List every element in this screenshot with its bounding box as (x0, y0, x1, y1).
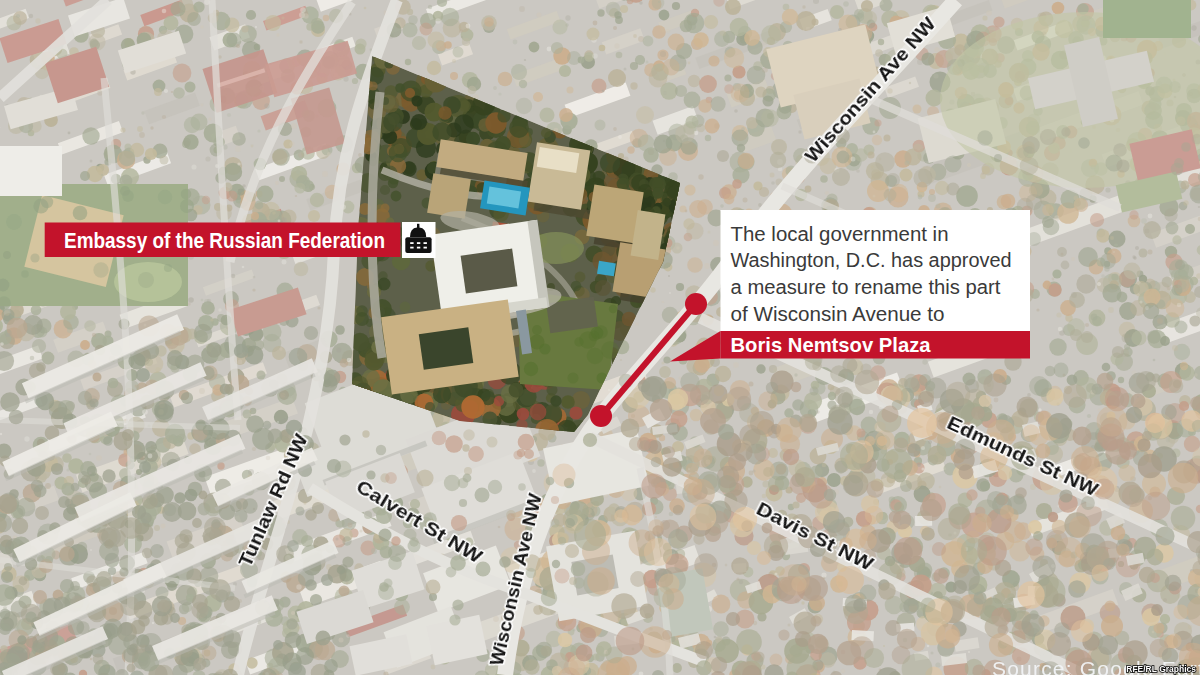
svg-text:a measure to rename this part: a measure to rename this part (731, 276, 1002, 298)
svg-text:Boris Nemtsov Plaza: Boris Nemtsov Plaza (731, 333, 931, 356)
svg-text:RFE/RL Graphics: RFE/RL Graphics (1126, 664, 1196, 674)
svg-text:Embassy of the Russian Federat: Embassy of the Russian Federation (64, 228, 385, 253)
svg-text:The local government in: The local government in (731, 223, 949, 245)
svg-text:of Wisconsin Avenue to: of Wisconsin Avenue to (731, 303, 945, 325)
svg-text:Washington, D.C. has approved: Washington, D.C. has approved (731, 249, 1012, 271)
